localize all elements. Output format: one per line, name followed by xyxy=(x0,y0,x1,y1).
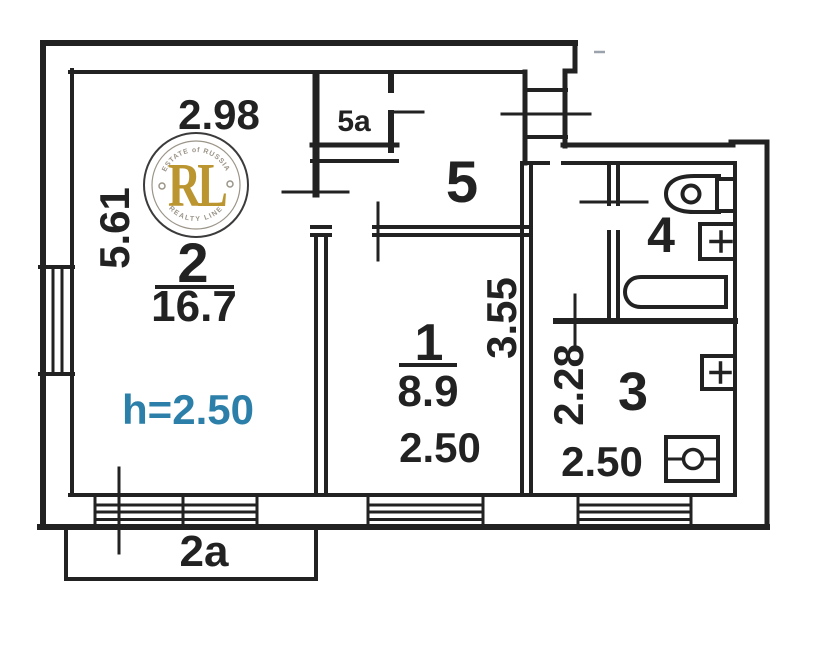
agency-stamp: ESTATE of RUSSIA REALTY LINE RL xyxy=(144,133,248,237)
dim-room1-depth: 3.55 xyxy=(478,277,525,359)
stamp-right-dot xyxy=(227,181,233,187)
bathtub-icon xyxy=(625,277,726,307)
dim-room2-width: 2.98 xyxy=(178,91,260,138)
stamp-left-dot xyxy=(159,183,165,189)
floor-plan-page: 2.98 5.61 2 16.7 h=2.50 1 8.9 3.55 2.50 … xyxy=(0,0,837,650)
room3-number: 3 xyxy=(618,362,648,422)
room2-area: 16.7 xyxy=(151,282,237,331)
toilet-hole-icon xyxy=(683,186,700,203)
room5a-number: 5a xyxy=(337,105,371,138)
room2-ceiling-height: h=2.50 xyxy=(122,386,254,433)
toilet-tank-icon xyxy=(717,179,735,211)
stamp-monogram: RL xyxy=(168,150,227,219)
dim-room2-depth: 5.61 xyxy=(91,187,138,269)
dim-room3-width: 2.50 xyxy=(561,438,643,485)
room5-number: 5 xyxy=(446,150,478,215)
dim-room1-width: 2.50 xyxy=(399,424,481,471)
room1-area: 8.9 xyxy=(397,367,458,416)
balcony-number: 2a xyxy=(180,527,229,576)
room4-number: 4 xyxy=(647,207,675,263)
stove-burner-icon xyxy=(684,450,703,469)
floor-plan-drawing: 2.98 5.61 2 16.7 h=2.50 1 8.9 3.55 2.50 … xyxy=(0,0,837,650)
dim-room3-depth: 2.28 xyxy=(545,344,592,426)
